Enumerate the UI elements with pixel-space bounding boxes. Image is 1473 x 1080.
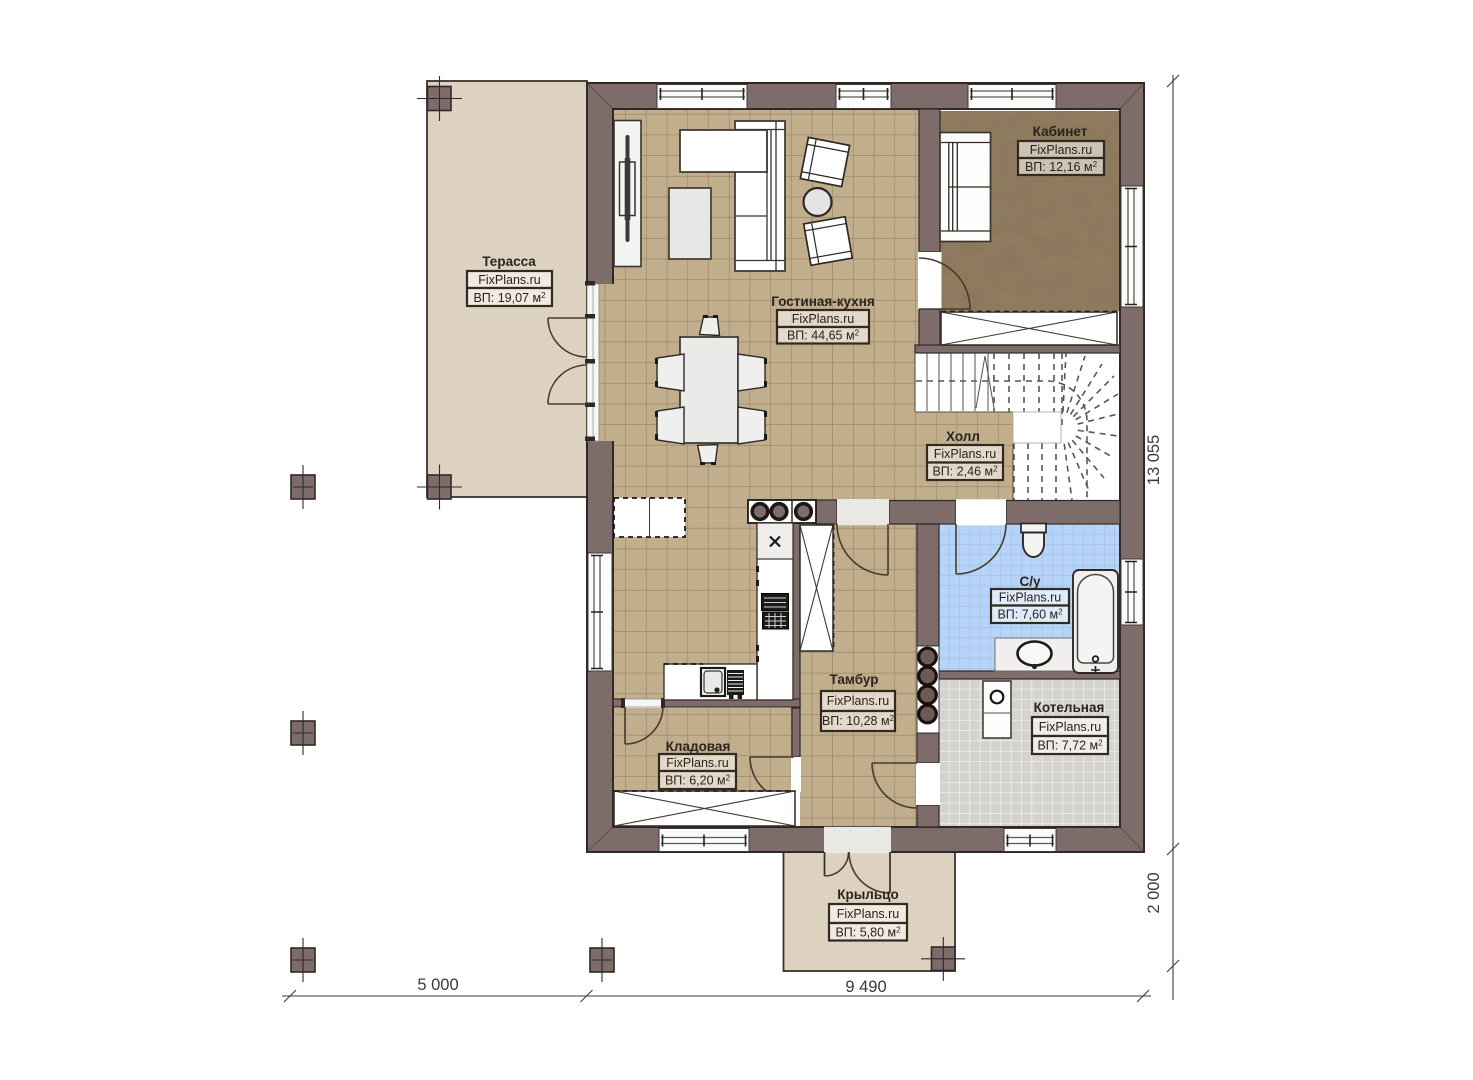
svg-text:ВП: 44,65 м2: ВП: 44,65 м2 — [787, 329, 860, 343]
svg-text:13 055: 13 055 — [1145, 435, 1163, 485]
svg-text:FixPlans.ru: FixPlans.ru — [827, 694, 890, 708]
svg-text:2 000: 2 000 — [1145, 872, 1163, 913]
svg-text:FixPlans.ru: FixPlans.ru — [837, 907, 900, 921]
svg-text:Терасса: Терасса — [482, 254, 536, 269]
svg-text:ВП: 19,07 м2: ВП: 19,07 м2 — [473, 291, 546, 305]
svg-text:Холл: Холл — [946, 429, 980, 444]
svg-text:ВП: 7,60 м2: ВП: 7,60 м2 — [997, 608, 1063, 622]
svg-text:FixPlans.ru: FixPlans.ru — [934, 447, 997, 461]
svg-text:FixPlans.ru: FixPlans.ru — [478, 273, 541, 287]
svg-text:FixPlans.ru: FixPlans.ru — [1039, 720, 1102, 734]
svg-text:ВП: 2,46 м2: ВП: 2,46 м2 — [932, 465, 998, 479]
svg-text:FixPlans.ru: FixPlans.ru — [999, 591, 1062, 605]
svg-text:ВП: 7,72 м2: ВП: 7,72 м2 — [1037, 739, 1103, 753]
svg-text:Котельная: Котельная — [1034, 700, 1105, 715]
svg-text:ВП: 6,20 м2: ВП: 6,20 м2 — [665, 774, 731, 788]
svg-text:Тамбур: Тамбур — [830, 672, 879, 687]
svg-text:Крыльцо: Крыльцо — [837, 887, 898, 902]
svg-text:FixPlans.ru: FixPlans.ru — [666, 756, 729, 770]
svg-text:ВП: 10,28 м2: ВП: 10,28 м2 — [822, 714, 895, 728]
svg-text:Гостиная-кухня: Гостиная-кухня — [771, 294, 874, 309]
svg-text:FixPlans.ru: FixPlans.ru — [792, 312, 855, 326]
svg-text:С/у: С/у — [1019, 574, 1041, 589]
svg-text:Кладовая: Кладовая — [666, 739, 731, 754]
svg-text:ВП: 5,80 м2: ВП: 5,80 м2 — [835, 926, 901, 940]
svg-text:Кабинет: Кабинет — [1033, 124, 1088, 139]
svg-text:ВП: 12,16 м2: ВП: 12,16 м2 — [1025, 160, 1098, 174]
svg-text:FixPlans.ru: FixPlans.ru — [1030, 143, 1093, 157]
svg-text:9 490: 9 490 — [845, 978, 886, 996]
svg-text:5 000: 5 000 — [417, 976, 458, 994]
